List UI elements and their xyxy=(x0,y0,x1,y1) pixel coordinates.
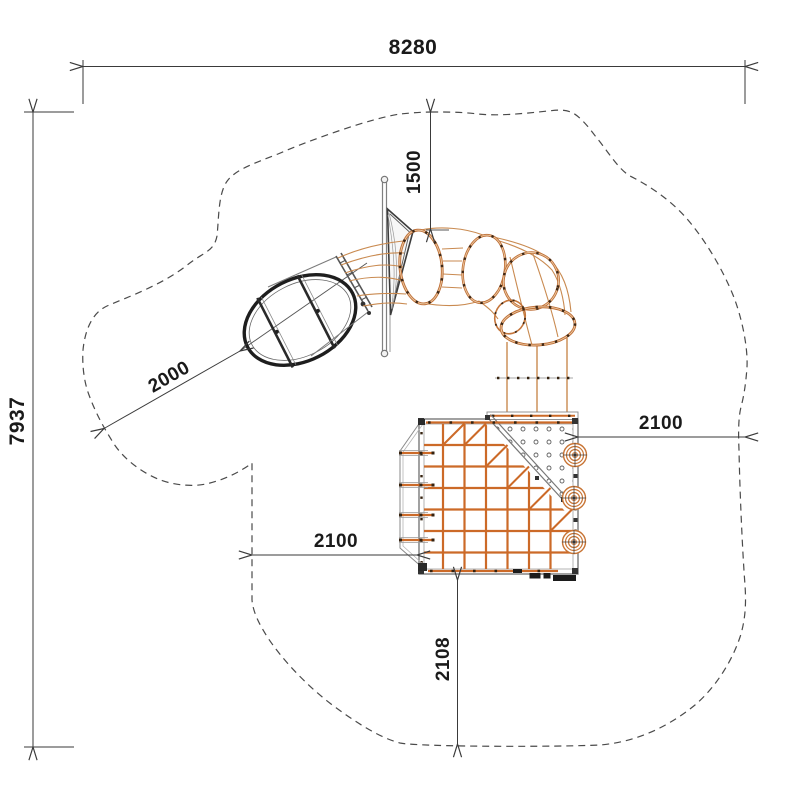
dim-right-clearance-label: 2100 xyxy=(639,413,683,434)
spiral-coil-3 xyxy=(562,530,586,554)
plan-drawing: 8280 7937 1500 2000 2100 2100 2108 xyxy=(0,0,800,800)
spiral-coil-2 xyxy=(562,486,586,510)
tower-platform xyxy=(399,412,587,581)
background xyxy=(0,0,800,800)
plan-drawing-page: 8280 7937 1500 2000 2100 2100 2108 xyxy=(0,0,800,800)
spiral-coil-1 xyxy=(563,443,587,467)
dim-bottom-clearance-label: 2108 xyxy=(433,637,454,681)
dim-overall-width-label: 8280 xyxy=(389,36,438,59)
spiral-coils xyxy=(562,443,587,554)
ladder-base-block xyxy=(418,563,427,571)
dim-overall-height-label: 7937 xyxy=(6,397,29,446)
ladder-top-block xyxy=(418,419,425,425)
dim-left-clearance-label: 2100 xyxy=(314,531,358,552)
dim-top-clearance-label: 1500 xyxy=(404,150,425,194)
